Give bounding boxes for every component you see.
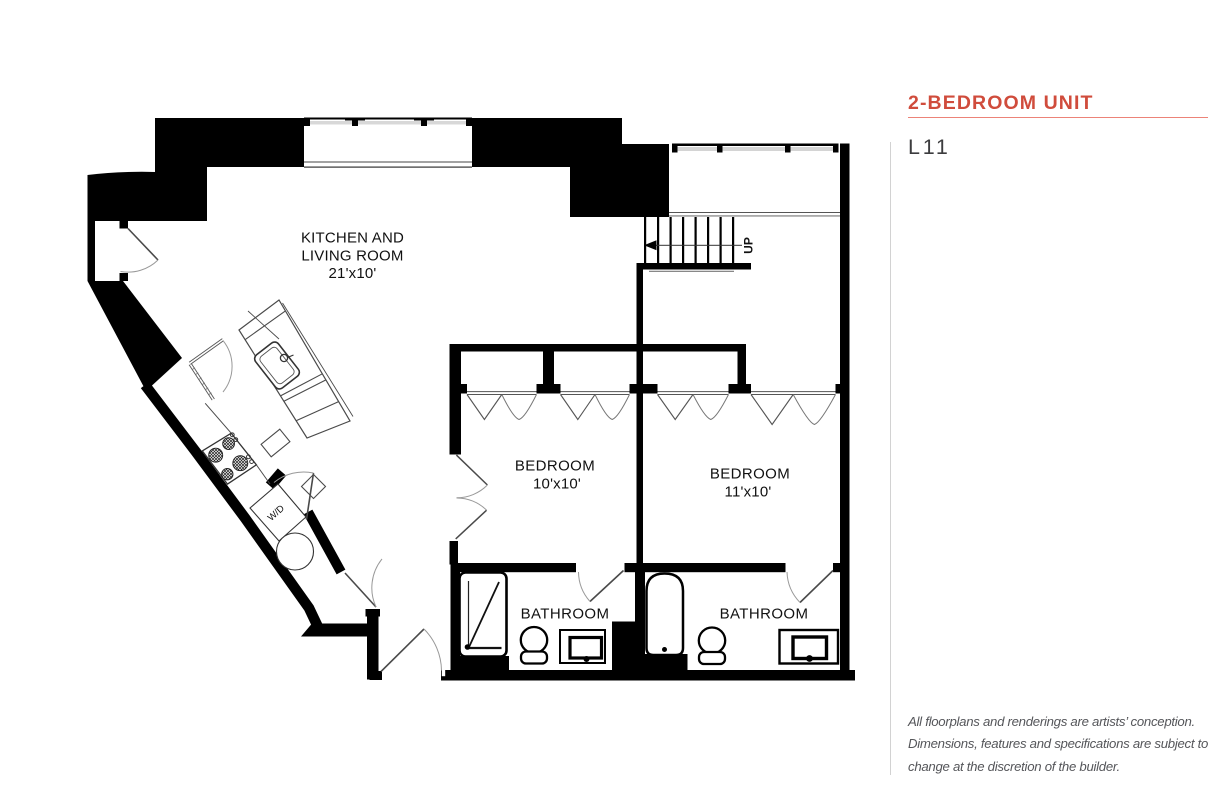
svg-text:BATHROOM: BATHROOM: [720, 606, 809, 623]
svg-text:11'x10': 11'x10': [725, 483, 772, 500]
svg-text:BATHROOM: BATHROOM: [521, 606, 610, 623]
svg-text:LIVING ROOM: LIVING ROOM: [301, 247, 403, 264]
svg-text:KITCHEN AND: KITCHEN AND: [301, 230, 404, 247]
svg-text:10'x10': 10'x10': [533, 475, 581, 492]
svg-text:BEDROOM: BEDROOM: [515, 458, 595, 475]
svg-text:21'x10': 21'x10': [329, 265, 377, 282]
svg-text:UP: UP: [742, 237, 756, 254]
svg-text:BEDROOM: BEDROOM: [710, 466, 790, 483]
